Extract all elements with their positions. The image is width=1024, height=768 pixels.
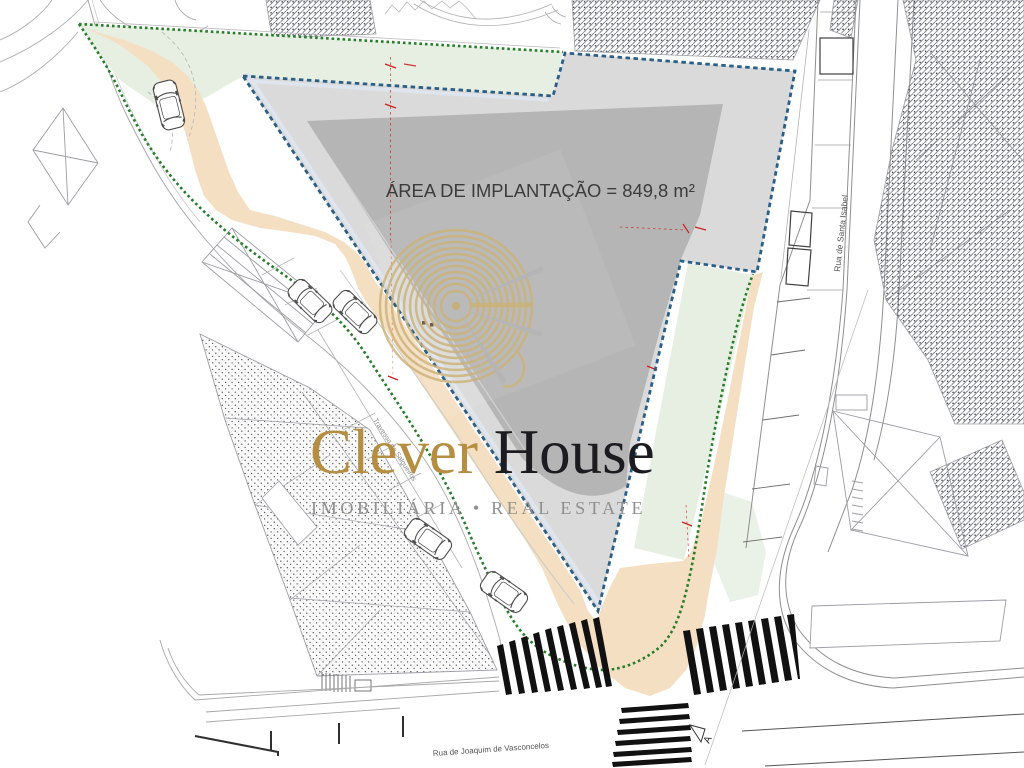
svg-text:IMOBILIÁRIA • REAL ESTATE: IMOBILIÁRIA • REAL ESTATE: [311, 497, 646, 518]
svg-text:Clever House: Clever House: [310, 417, 655, 487]
svg-text:ÁREA DE IMPLANTAÇÃO = 849,8 m²: ÁREA DE IMPLANTAÇÃO = 849,8 m²: [386, 180, 695, 201]
